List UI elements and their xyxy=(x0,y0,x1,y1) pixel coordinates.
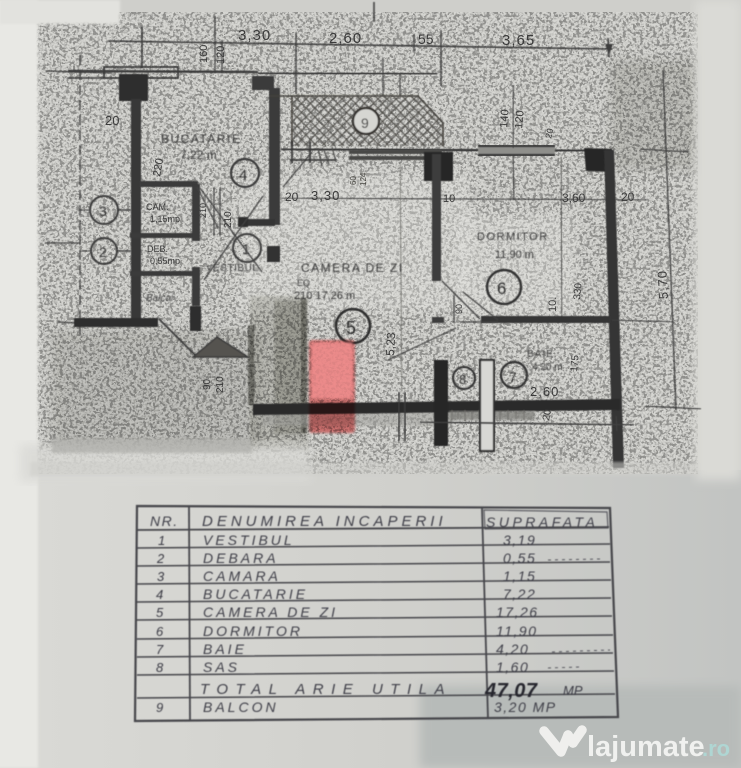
svg-text:124: 124 xyxy=(359,172,368,186)
svg-text:9: 9 xyxy=(156,700,163,715)
svg-text:DORMITOR: DORMITOR xyxy=(203,623,303,639)
svg-text:7: 7 xyxy=(509,369,517,385)
svg-text:160: 160 xyxy=(198,45,210,63)
svg-text:90: 90 xyxy=(202,378,213,390)
svg-text:CAMERA DE ZI: CAMERA DE ZI xyxy=(203,604,338,620)
svg-text:1: 1 xyxy=(158,533,165,548)
svg-text:CAMERA DE ZI: CAMERA DE ZI xyxy=(301,261,404,275)
svg-text:5,23: 5,23 xyxy=(383,332,398,356)
svg-text:DENUMIREA INCAPERII: DENUMIREA INCAPERII xyxy=(202,513,447,530)
svg-text:11,90: 11,90 xyxy=(496,623,538,639)
svg-text:0,55: 0,55 xyxy=(503,550,536,566)
svg-text:3,20 MP: 3,20 MP xyxy=(494,699,557,715)
svg-text:3: 3 xyxy=(157,569,165,584)
svg-text:330: 330 xyxy=(572,282,584,300)
svg-text:9: 9 xyxy=(361,115,369,131)
svg-text:5: 5 xyxy=(156,605,164,620)
svg-text:55: 55 xyxy=(418,31,434,47)
svg-text:3: 3 xyxy=(99,203,107,219)
svg-text:3,30: 3,30 xyxy=(311,188,340,203)
svg-text:.ro: .ro xyxy=(702,736,730,761)
svg-text:6: 6 xyxy=(497,279,506,298)
svg-text:120: 120 xyxy=(513,110,527,129)
svg-text:2: 2 xyxy=(156,551,165,566)
svg-text:2,60: 2,60 xyxy=(329,30,362,47)
svg-text:TOTAL ARIE UTILA: TOTAL ARIE UTILA xyxy=(200,681,452,698)
svg-text:2,60: 2,60 xyxy=(530,384,559,399)
svg-text:1,60: 1,60 xyxy=(496,659,529,675)
svg-text:140: 140 xyxy=(498,109,512,128)
svg-text:MP: MP xyxy=(563,683,583,698)
svg-text:10: 10 xyxy=(443,193,455,205)
svg-text:120: 120 xyxy=(215,46,227,64)
svg-text:5,70: 5,70 xyxy=(654,270,671,300)
svg-text:7,22 m: 7,22 m xyxy=(180,148,217,162)
svg-text:1,15mp: 1,15mp xyxy=(150,214,180,224)
svg-text:17,26: 17,26 xyxy=(496,604,539,620)
svg-text:DORMITOR: DORMITOR xyxy=(477,231,549,243)
svg-text:20: 20 xyxy=(285,190,299,204)
svg-text:3,30: 3,30 xyxy=(238,27,271,44)
svg-text:SAS: SAS xyxy=(203,659,240,675)
svg-text:0,55mp: 0,55mp xyxy=(150,256,180,266)
svg-text:90: 90 xyxy=(454,304,464,314)
svg-text:3,65: 3,65 xyxy=(502,32,535,49)
svg-text:10.: 10. xyxy=(547,297,559,312)
svg-text:7,22: 7,22 xyxy=(503,586,536,602)
svg-text:SUPRAFATA: SUPRAFATA xyxy=(486,514,598,530)
svg-text:7: 7 xyxy=(156,642,164,657)
svg-text:VESTIBUL: VESTIBUL xyxy=(203,532,295,548)
svg-text:8: 8 xyxy=(156,660,164,675)
svg-text:4: 4 xyxy=(156,587,163,602)
svg-text:60: 60 xyxy=(349,176,358,185)
svg-text:DEBARA: DEBARA xyxy=(203,550,279,566)
svg-text:BAIE: BAIE xyxy=(527,349,554,360)
svg-text:DEB.: DEB. xyxy=(147,244,168,254)
svg-text:210: 210 xyxy=(223,211,234,228)
svg-text:11,90 m: 11,90 m xyxy=(495,249,534,261)
svg-text:CAMARA: CAMARA xyxy=(203,568,281,584)
svg-text:3,19: 3,19 xyxy=(503,532,536,548)
svg-text:BAIE: BAIE xyxy=(203,641,247,657)
svg-text:8: 8 xyxy=(459,372,466,387)
svg-text:3,60: 3,60 xyxy=(562,191,586,205)
svg-text:20: 20 xyxy=(105,113,119,128)
svg-text:4,20: 4,20 xyxy=(496,641,529,657)
svg-text:NR.: NR. xyxy=(150,513,179,529)
svg-text:BALCON: BALCON xyxy=(203,699,279,715)
svg-text:1,15: 1,15 xyxy=(503,568,536,584)
svg-text:6: 6 xyxy=(156,624,164,639)
svg-text:BUCATARIE: BUCATARIE xyxy=(203,586,308,602)
svg-text:4: 4 xyxy=(239,167,247,184)
svg-text:VESTIBUL: VESTIBUL xyxy=(206,263,258,274)
svg-text:4,20 m: 4,20 m xyxy=(532,362,563,373)
svg-text:Balcai: Balcai xyxy=(146,293,174,304)
svg-text:20: 20 xyxy=(621,190,635,204)
svg-text:5: 5 xyxy=(346,318,356,338)
svg-text:lajumate: lajumate xyxy=(587,731,705,763)
svg-text:210: 210 xyxy=(215,376,226,393)
svg-text:EQ: EQ xyxy=(297,278,310,288)
svg-text:CAM.: CAM. xyxy=(146,202,169,212)
svg-text:BUCATARIE: BUCATARIE xyxy=(161,132,241,146)
svg-text:175: 175 xyxy=(569,354,581,372)
svg-text:2: 2 xyxy=(99,244,107,260)
